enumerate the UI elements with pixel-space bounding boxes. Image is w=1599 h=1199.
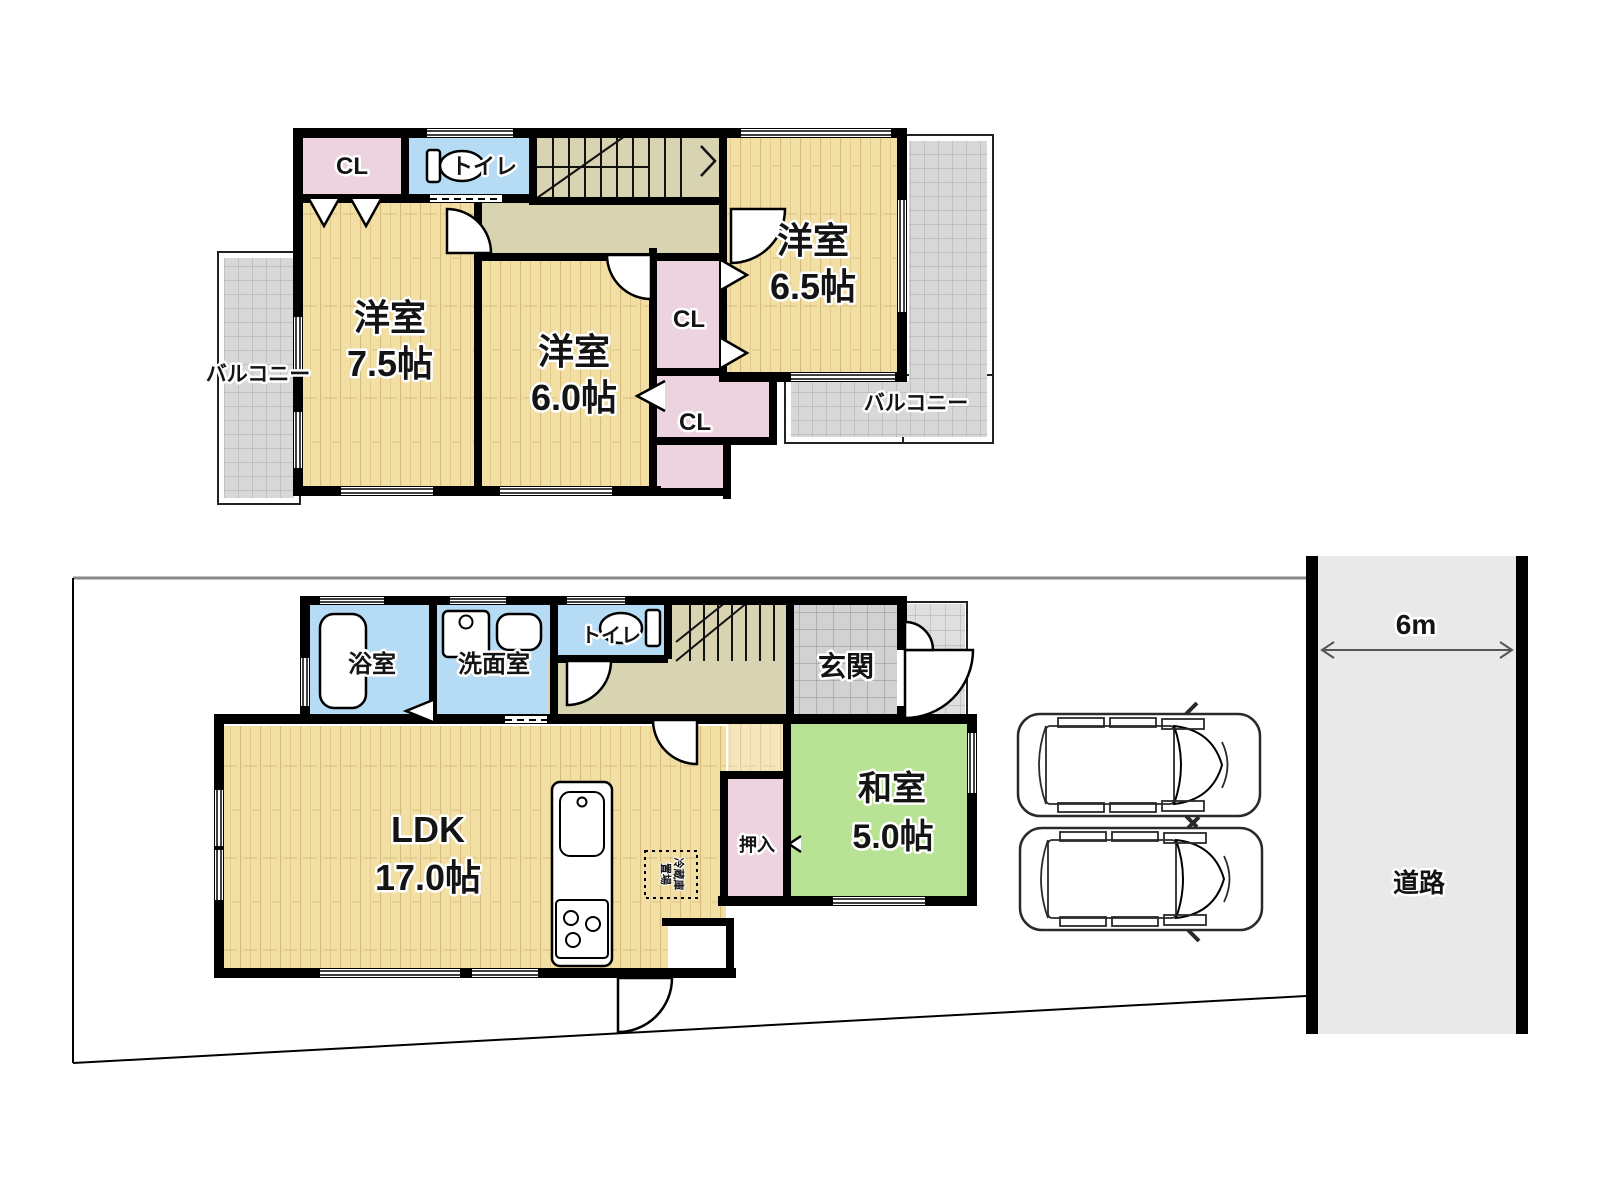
label-bath: 浴室 [348, 650, 396, 678]
label-washroom: 洗面室 [458, 650, 530, 678]
label-room75-name: 洋室 [354, 297, 426, 338]
svg-text:冷蔵庫: 冷蔵庫 [672, 858, 686, 891]
label-room75-size: 7.5帖 [347, 343, 433, 384]
floorplan-page: CL トイレ 洋室 7.5帖 洋室 6.0帖 洋室 6.5帖 CL CL バルコ… [0, 0, 1599, 1199]
label-room65-name: 洋室 [777, 220, 849, 261]
label-road-width: 6m [1396, 609, 1436, 640]
label-road: 道路 [1393, 868, 1446, 898]
label-ldk-size: 17.0帖 [375, 857, 481, 898]
entrance-hall-floor [728, 718, 783, 775]
label-room65-size: 6.5帖 [770, 266, 856, 307]
hall-2f [480, 202, 719, 253]
kitchen-counter [552, 782, 612, 966]
floor2-plan [218, 128, 993, 504]
label-washitsu-name: 和室 [858, 769, 926, 808]
label-toilet-2f: トイレ [451, 154, 517, 179]
label-room60-size: 6.0帖 [531, 377, 617, 418]
ldk-notch [668, 926, 726, 968]
wash-basin [497, 614, 541, 650]
label-closet-top-2f: CL [336, 153, 368, 180]
car-bottom [1020, 817, 1262, 941]
label-room60-name: 洋室 [538, 331, 610, 372]
label-balcony-left: バルコニー [206, 363, 311, 386]
car-top [1018, 703, 1260, 827]
label-oshiire: 押入 [739, 834, 775, 855]
label-washitsu-size: 5.0帖 [852, 818, 933, 856]
label-closet-mid-2f: CL [673, 306, 705, 333]
label-entrance: 玄関 [818, 650, 874, 682]
room-60 [482, 261, 649, 486]
label-balcony-right: バルコニー [864, 392, 969, 415]
label-ldk-name: LDK [391, 809, 465, 850]
ldk [224, 726, 726, 968]
label-closet-bottom-2f: CL [679, 409, 711, 436]
washitsu [791, 720, 969, 899]
svg-text:置場: 置場 [659, 863, 673, 885]
label-toilet-1f: トイレ [581, 625, 641, 647]
floorplan-drawing: CL トイレ 洋室 7.5帖 洋室 6.0帖 洋室 6.5帖 CL CL バルコ… [0, 0, 1599, 1199]
